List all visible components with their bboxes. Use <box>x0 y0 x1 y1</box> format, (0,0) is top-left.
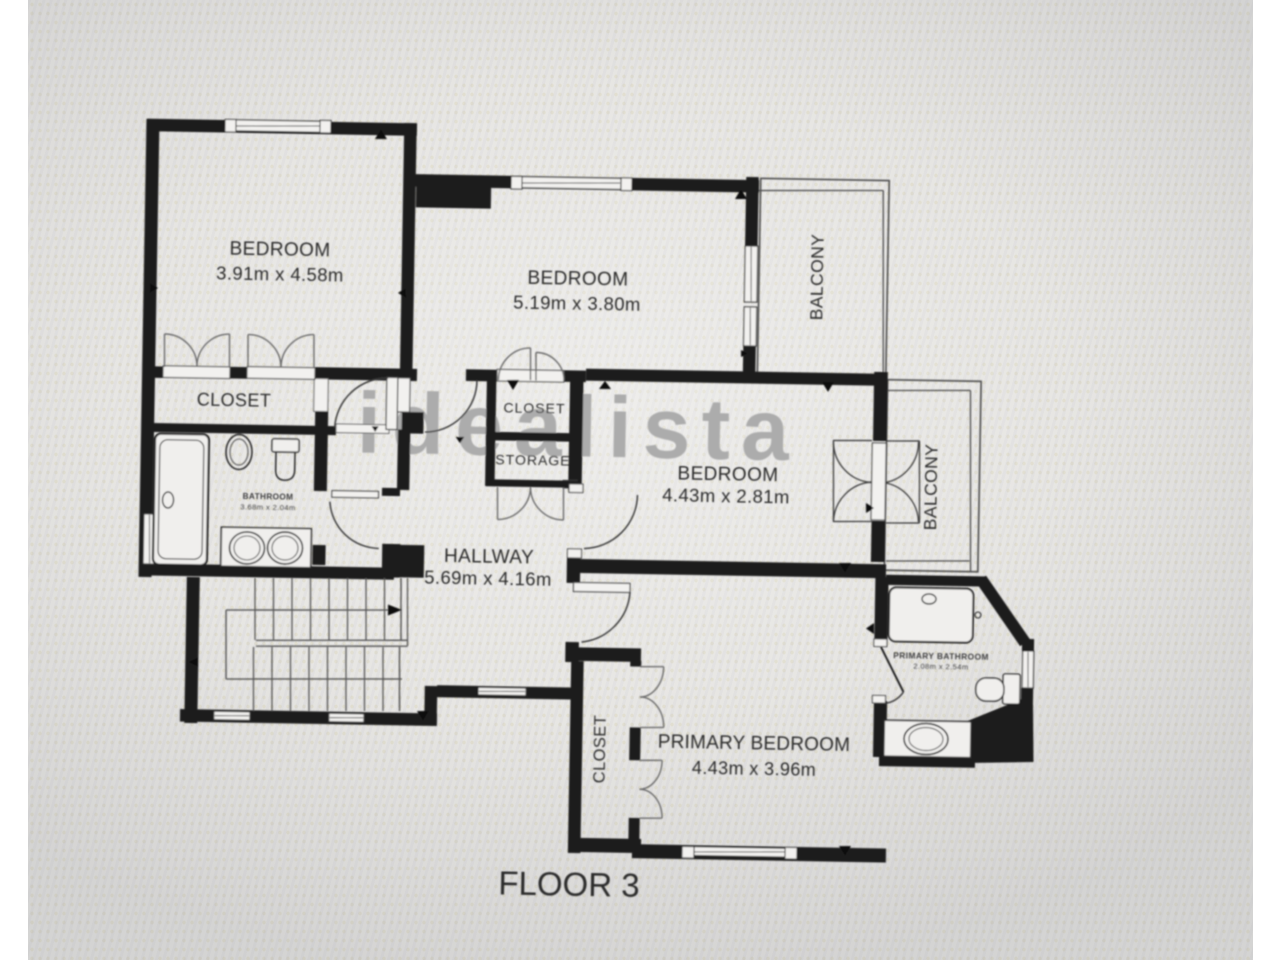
svg-text:PRIMARY BATHROOM: PRIMARY BATHROOM <box>893 650 989 662</box>
svg-text:BEDROOM: BEDROOM <box>229 239 330 262</box>
svg-text:CLOSET: CLOSET <box>590 715 609 784</box>
svg-text:BEDROOM: BEDROOM <box>677 464 778 487</box>
svg-text:PRIMARY BEDROOM: PRIMARY BEDROOM <box>658 732 851 756</box>
svg-text:5.19m x 3.80m: 5.19m x 3.80m <box>513 291 641 314</box>
svg-text:BATHROOM: BATHROOM <box>243 492 294 502</box>
svg-text:3.68m x 2.04m: 3.68m x 2.04m <box>240 503 296 513</box>
svg-text:STORAGE: STORAGE <box>495 451 570 468</box>
svg-text:2.08m x 2.54m: 2.08m x 2.54m <box>913 662 969 672</box>
svg-text:3.91m x 4.58m: 3.91m x 4.58m <box>216 262 344 285</box>
svg-text:4.43m x 3.96m: 4.43m x 3.96m <box>692 758 817 780</box>
svg-text:CLOSET: CLOSET <box>197 389 272 410</box>
svg-text:BALCONY: BALCONY <box>920 444 942 531</box>
svg-text:BALCONY: BALCONY <box>806 234 828 321</box>
svg-text:BEDROOM: BEDROOM <box>527 268 628 291</box>
svg-text:4.43m x 2.81m: 4.43m x 2.81m <box>662 484 790 507</box>
svg-text:FLOOR 3: FLOOR 3 <box>498 864 640 903</box>
svg-text:5.69m x 4.16m: 5.69m x 4.16m <box>424 566 552 589</box>
svg-text:CLOSET: CLOSET <box>503 399 565 416</box>
svg-text:HALLWAY: HALLWAY <box>444 546 534 569</box>
